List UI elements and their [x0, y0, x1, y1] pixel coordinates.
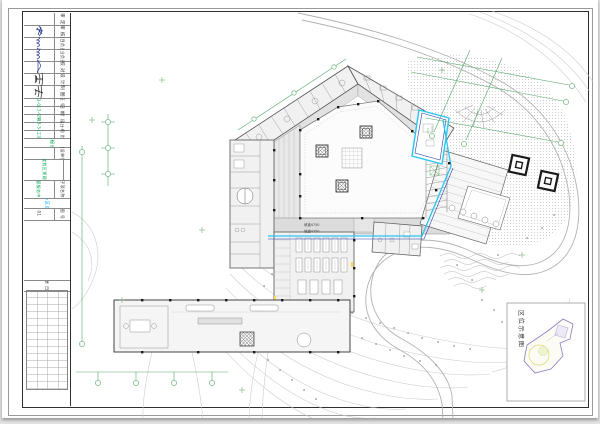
- inset-map: 区位示意图: [507, 303, 585, 401]
- highlight-mark: [351, 262, 353, 267]
- ramp-label: 坡道4750: [304, 222, 319, 227]
- site-plan: 坡道4750 坡道4750 区位示意图: [2, 0, 598, 418]
- drawing-sheet: 审 定 审 核 项目负责 专业负责: [2, 0, 598, 418]
- site-core: [539, 347, 548, 356]
- left-wing: [230, 140, 274, 268]
- lobby-wing: [114, 300, 350, 352]
- paving-grid: [342, 148, 362, 168]
- inset-map-title: 区位示意图: [517, 310, 525, 348]
- planting-hatch: [440, 254, 520, 289]
- planter: [240, 332, 254, 346]
- ramp-label: 坡道4750: [304, 229, 319, 234]
